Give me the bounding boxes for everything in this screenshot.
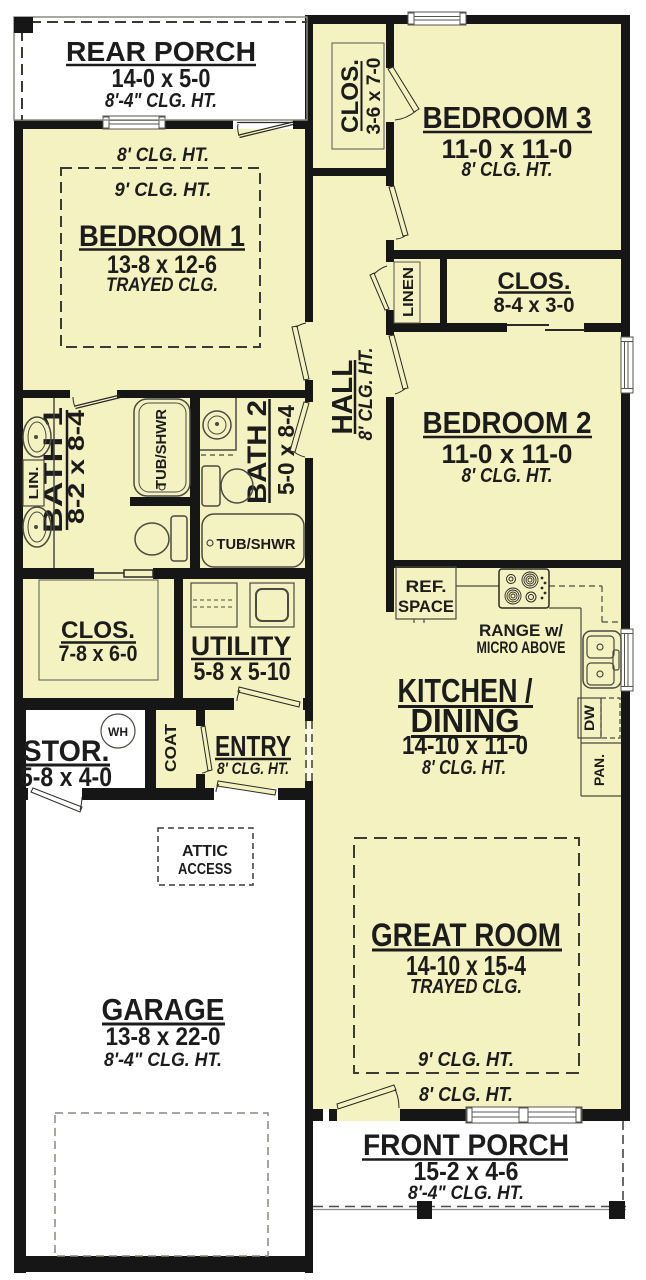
svg-text:8' CLG. HT.: 8' CLG. HT.	[422, 757, 506, 779]
svg-text:LIN.: LIN.	[26, 467, 41, 500]
svg-text:CLOS.: CLOS.	[498, 268, 571, 295]
svg-text:14-0 x 5-0: 14-0 x 5-0	[112, 63, 211, 93]
svg-text:ACCESS: ACCESS	[178, 861, 232, 878]
svg-text:13-8 x 22-0: 13-8 x 22-0	[106, 1023, 221, 1051]
svg-text:BATH 2: BATH 2	[242, 400, 272, 504]
svg-text:8' CLG. HT.: 8' CLG. HT.	[462, 465, 553, 487]
svg-text:7-8 x 6-0: 7-8 x 6-0	[59, 641, 138, 666]
svg-text:8' CLG. HT.: 8' CLG. HT.	[356, 348, 377, 441]
svg-text:14-10 x 11-0: 14-10 x 11-0	[402, 730, 528, 760]
svg-text:15-2 x 4-6: 15-2 x 4-6	[414, 1156, 519, 1186]
svg-text:UTILITY: UTILITY	[191, 631, 291, 661]
svg-text:8-4 x 3-0: 8-4 x 3-0	[494, 294, 575, 317]
svg-text:8-2 x 8-4: 8-2 x 8-4	[63, 410, 89, 524]
svg-text:5-8 x 5-10: 5-8 x 5-10	[194, 658, 291, 686]
svg-text:9' CLG. HT.: 9' CLG. HT.	[418, 1049, 514, 1071]
svg-text:5-8 x 4-0: 5-8 x 4-0	[20, 762, 112, 792]
svg-text:WH: WH	[108, 725, 128, 739]
svg-text:REF.: REF.	[406, 577, 447, 596]
svg-text:8'-4" CLG. HT.: 8'-4" CLG. HT.	[104, 1050, 222, 1071]
svg-text:TUB/SHWR: TUB/SHWR	[153, 409, 170, 489]
svg-text:8' CLG. HT.: 8' CLG. HT.	[217, 759, 289, 778]
svg-text:PAN.: PAN.	[591, 754, 607, 786]
svg-text:BEDROOM 3: BEDROOM 3	[423, 100, 592, 135]
svg-text:DW: DW	[581, 704, 597, 731]
svg-text:3-6 x 7-0: 3-6 x 7-0	[364, 58, 385, 135]
svg-text:SPACE: SPACE	[398, 597, 454, 616]
svg-text:TUB/SHWR: TUB/SHWR	[217, 536, 296, 553]
svg-text:8'-4" CLG. HT.: 8'-4" CLG. HT.	[408, 1183, 524, 1204]
svg-text:TRAYED CLG.: TRAYED CLG.	[106, 275, 218, 296]
svg-text:8' CLG. HT.: 8' CLG. HT.	[419, 1084, 513, 1106]
svg-text:MICRO ABOVE: MICRO ABOVE	[477, 638, 566, 657]
svg-text:GREAT ROOM: GREAT ROOM	[371, 917, 561, 953]
svg-text:8' CLG. HT.: 8' CLG. HT.	[462, 159, 553, 181]
svg-text:GARAGE: GARAGE	[102, 992, 225, 1027]
svg-text:9' CLG. HT.: 9' CLG. HT.	[115, 180, 212, 201]
svg-text:CLOS.: CLOS.	[337, 59, 364, 133]
svg-text:ATTIC: ATTIC	[182, 843, 228, 860]
svg-text:LINEN: LINEN	[400, 267, 417, 317]
svg-text:8' CLG. HT.: 8' CLG. HT.	[117, 145, 209, 166]
svg-text:CLOS.: CLOS.	[61, 617, 135, 644]
svg-text:COAT: COAT	[163, 724, 180, 772]
svg-text:TRAYED CLG.: TRAYED CLG.	[410, 976, 522, 998]
svg-text:8'-4" CLG. HT.: 8'-4" CLG. HT.	[105, 90, 217, 112]
svg-text:BEDROOM 1: BEDROOM 1	[79, 220, 245, 253]
svg-text:BEDROOM 2: BEDROOM 2	[423, 405, 592, 440]
